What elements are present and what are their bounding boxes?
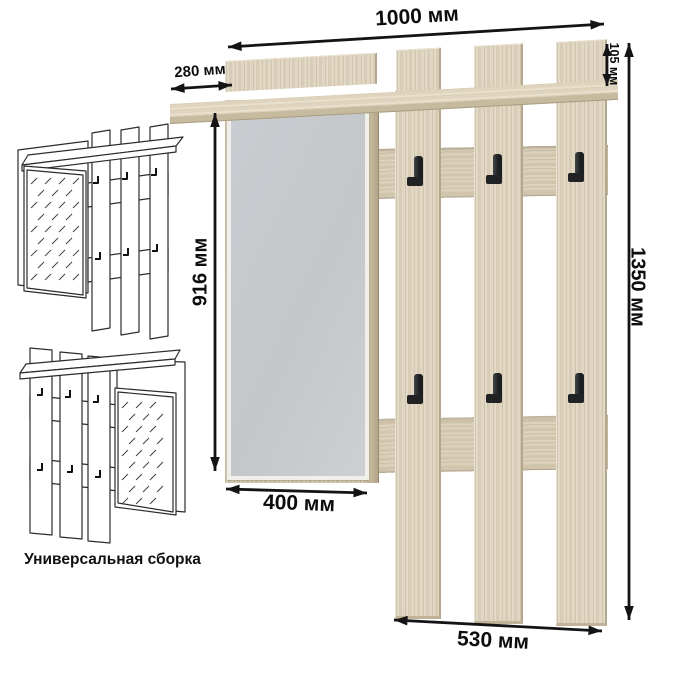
product-dimension-diagram: 1000 мм 280 мм 105 мм 1350 мм 916 мм 400… xyxy=(0,0,700,700)
assembly-variant-mirror-left xyxy=(10,120,205,350)
dim-label-top-panel-height: 105 мм xyxy=(607,43,621,86)
dim-label-mirror-height: 916 мм xyxy=(190,238,213,307)
coat-hook-icon xyxy=(414,374,423,404)
coat-hook-icon xyxy=(575,373,584,403)
coat-hook-icon xyxy=(493,373,502,403)
coat-hook-icon xyxy=(575,152,584,182)
assembly-variant-mirror-right xyxy=(12,340,192,565)
coat-hook-icon xyxy=(414,156,423,186)
dim-label-shelf-depth: 280 мм xyxy=(174,61,226,82)
assembly-caption: Универсальная сборка xyxy=(15,551,210,569)
dim-label-slat-section-width: 530 мм xyxy=(456,627,529,655)
coat-hook-icon xyxy=(493,154,502,184)
slat-2-top xyxy=(474,43,523,90)
mirror-backing-top xyxy=(225,53,377,92)
dim-label-total-height: 1350 мм xyxy=(626,247,649,327)
slat-1-top xyxy=(396,48,441,93)
mirror xyxy=(231,112,365,476)
dim-label-total-width: 1000 мм xyxy=(375,2,460,31)
dim-label-mirror-width: 400 мм xyxy=(263,491,336,517)
